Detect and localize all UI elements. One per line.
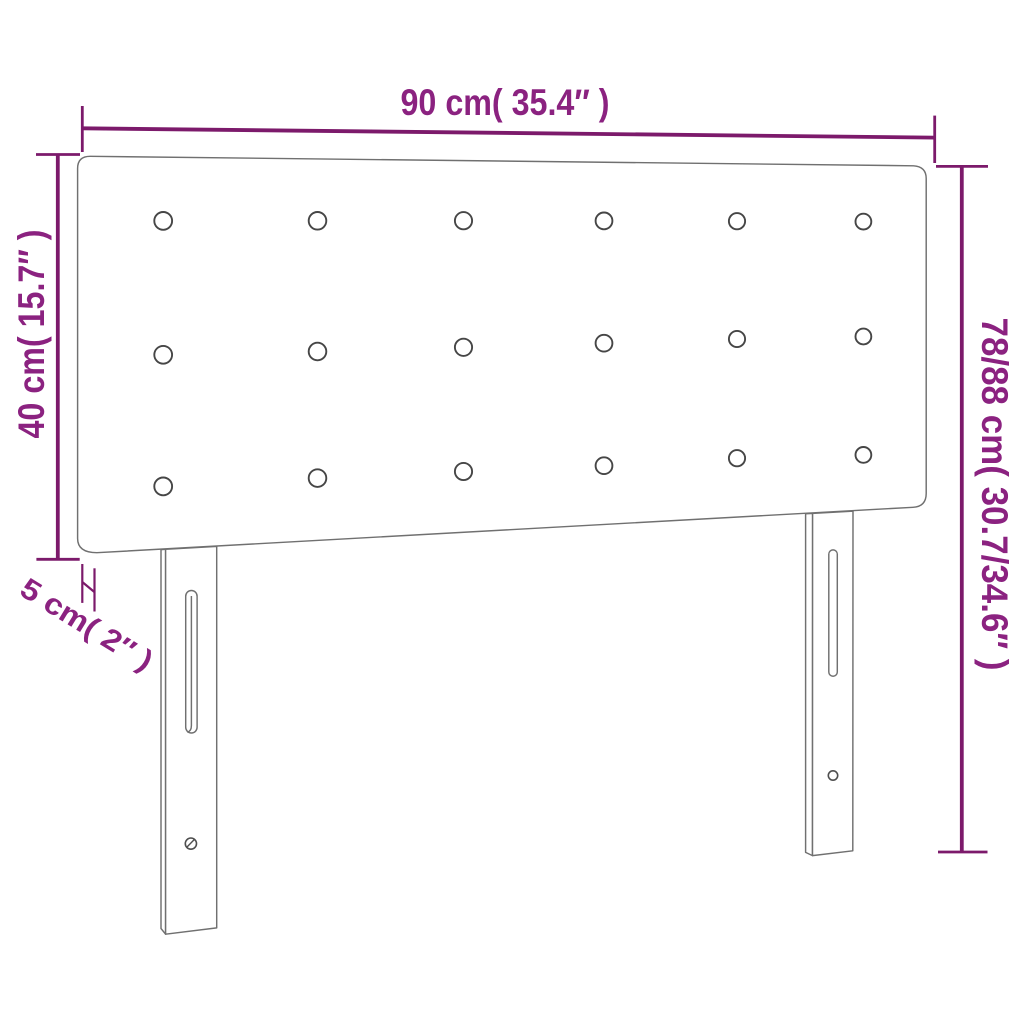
svg-text:90 cm( 35.4″ ): 90 cm( 35.4″ ) [401,82,610,123]
svg-text:40 cm( 15.7″ ): 40 cm( 15.7″ ) [11,230,52,439]
svg-text:78/88 cm( 30.7/34.6″ ): 78/88 cm( 30.7/34.6″ ) [974,318,1015,671]
